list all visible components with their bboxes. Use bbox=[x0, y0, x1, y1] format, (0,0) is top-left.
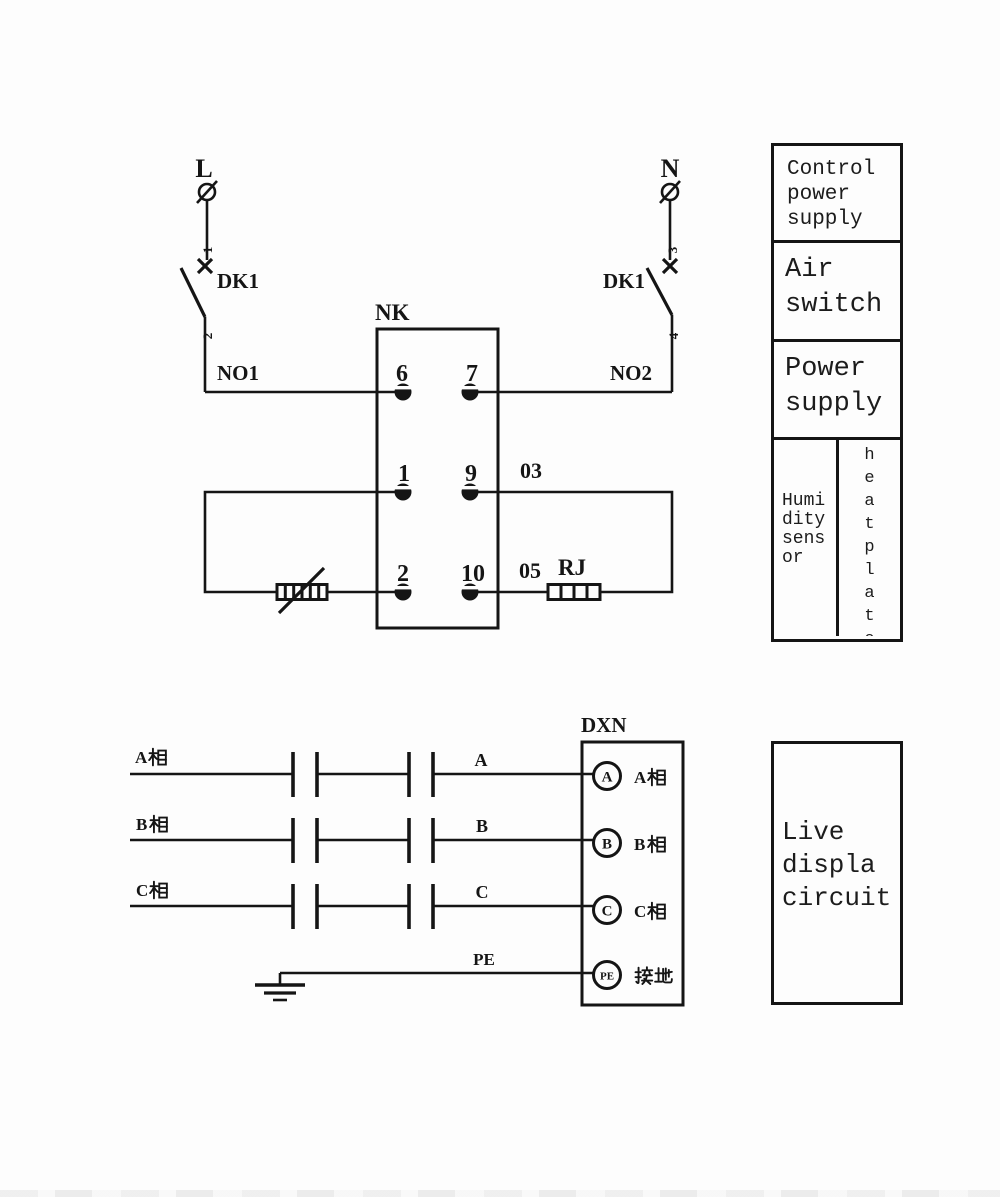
legend-row-power-supply: Power supply bbox=[774, 342, 900, 440]
scan-noise-strip bbox=[0, 1190, 1000, 1197]
live-display-circuit-box: Live displa circuit bbox=[771, 741, 903, 1005]
dk1-right-label: DK1 bbox=[603, 269, 645, 293]
terminal-number-6: 6 bbox=[396, 361, 408, 387]
wire-b-label: B bbox=[476, 816, 488, 836]
dk1-right-blade bbox=[647, 268, 672, 315]
phase-l-label: L bbox=[195, 154, 212, 183]
wire-03-label: 03 bbox=[520, 458, 542, 483]
wire-t1-sensor-loop bbox=[205, 492, 403, 592]
dk1-left-label: DK1 bbox=[217, 269, 259, 293]
legend-text-power-supply: Power supply bbox=[785, 354, 882, 419]
live-display-circuit-text: Live displa circuit bbox=[782, 817, 891, 913]
svg-text:A: A bbox=[634, 768, 647, 787]
terminal-symbol-n bbox=[660, 181, 680, 203]
phase-a-row: A A bbox=[130, 748, 594, 797]
legend-table: Control power supply Air switch Power su… bbox=[771, 143, 903, 642]
rj-heater-symbol bbox=[548, 585, 600, 600]
pole-number-1: 1 bbox=[200, 247, 215, 254]
contact-x-right bbox=[663, 259, 677, 273]
wire-a-label: A bbox=[475, 750, 488, 770]
phase-n-label: N bbox=[661, 154, 680, 183]
svg-text:B: B bbox=[136, 815, 147, 834]
dxn-terminal-pe-letter: PE bbox=[600, 971, 614, 983]
nk-box-label: NK bbox=[375, 300, 410, 325]
pe-row: PE bbox=[255, 950, 594, 1000]
dxn-terminal-pe: PE bbox=[594, 962, 672, 989]
legend-row-control-power-supply: Control power supply bbox=[774, 146, 900, 243]
phase-c-left-label: C bbox=[136, 881, 167, 900]
left-supply-branch: L 1 DK1 2 NO1 bbox=[181, 154, 259, 392]
terminal-number-1: 1 bbox=[398, 461, 410, 487]
dxn-terminal-c: C C bbox=[594, 897, 665, 924]
svg-text:A: A bbox=[135, 748, 148, 767]
pole-number-2: 2 bbox=[200, 333, 215, 340]
svg-text:C: C bbox=[634, 902, 646, 921]
dxn-terminal-a: A A bbox=[594, 763, 665, 790]
no2-label: NO2 bbox=[610, 361, 652, 385]
wire-c-label: C bbox=[476, 882, 489, 902]
rj-label: RJ bbox=[558, 555, 586, 580]
terminal-number-2: 2 bbox=[397, 561, 409, 587]
legend-text-humidity-sensor: Humidity sensor bbox=[782, 491, 825, 568]
pole-number-3: 3 bbox=[665, 246, 680, 253]
dxn-terminal-b: B B bbox=[594, 830, 665, 857]
humidity-sensor-symbol bbox=[277, 568, 327, 613]
dxn-terminal-a-label: A bbox=[634, 768, 665, 787]
contact-x-left bbox=[198, 259, 212, 273]
live-display-circuit: A A B B C bbox=[130, 713, 683, 1005]
legend-text-control-power-supply: Control power supply bbox=[787, 158, 875, 231]
legend-text-air-switch: Air switch bbox=[785, 255, 882, 320]
dxn-terminal-b-label: B bbox=[634, 835, 665, 854]
dxn-terminal-pe-label bbox=[636, 967, 672, 984]
dxn-terminal-c-letter: C bbox=[602, 904, 613, 920]
terminal-number-7: 7 bbox=[466, 361, 478, 387]
nk-controller: NK bbox=[205, 300, 672, 628]
phase-b-row: B B bbox=[130, 815, 594, 863]
dxn-box-label: DXN bbox=[581, 713, 627, 737]
pole-number-4: 4 bbox=[666, 332, 681, 339]
terminal-symbol-l bbox=[197, 181, 217, 203]
legend-cell-heatplate: heatplate bbox=[839, 440, 900, 636]
legend-text-heatplate: heatplate bbox=[861, 446, 878, 636]
svg-text:B: B bbox=[634, 835, 645, 854]
terminal-number-9: 9 bbox=[465, 461, 477, 487]
dxn-terminal-c-label: C bbox=[634, 902, 665, 921]
wire-pe-label: PE bbox=[473, 950, 495, 969]
ground-symbol bbox=[255, 985, 305, 1000]
dk1-left-blade bbox=[181, 268, 205, 317]
wire-05-label: 05 bbox=[519, 558, 541, 583]
svg-text:C: C bbox=[136, 881, 148, 900]
legend-cell-humidity-sensor: Humidity sensor bbox=[774, 440, 839, 636]
right-supply-branch: N 3 DK1 4 NO2 bbox=[603, 154, 681, 392]
phase-c-row: C C bbox=[130, 881, 594, 929]
terminal-number-10: 10 bbox=[461, 561, 485, 587]
schematic-page: L 1 DK1 2 NO1 N 3 DK1 4 NO2 bbox=[0, 0, 1000, 1197]
phase-a-left-label: A bbox=[135, 748, 166, 767]
legend-row-air-switch: Air switch bbox=[774, 243, 900, 342]
dxn-terminal-b-letter: B bbox=[602, 837, 612, 853]
legend-row-bottom: Humidity sensor heatplate bbox=[774, 440, 900, 636]
dxn-terminal-a-letter: A bbox=[602, 770, 613, 786]
no1-label: NO1 bbox=[217, 361, 259, 385]
phase-b-left-label: B bbox=[136, 815, 167, 834]
